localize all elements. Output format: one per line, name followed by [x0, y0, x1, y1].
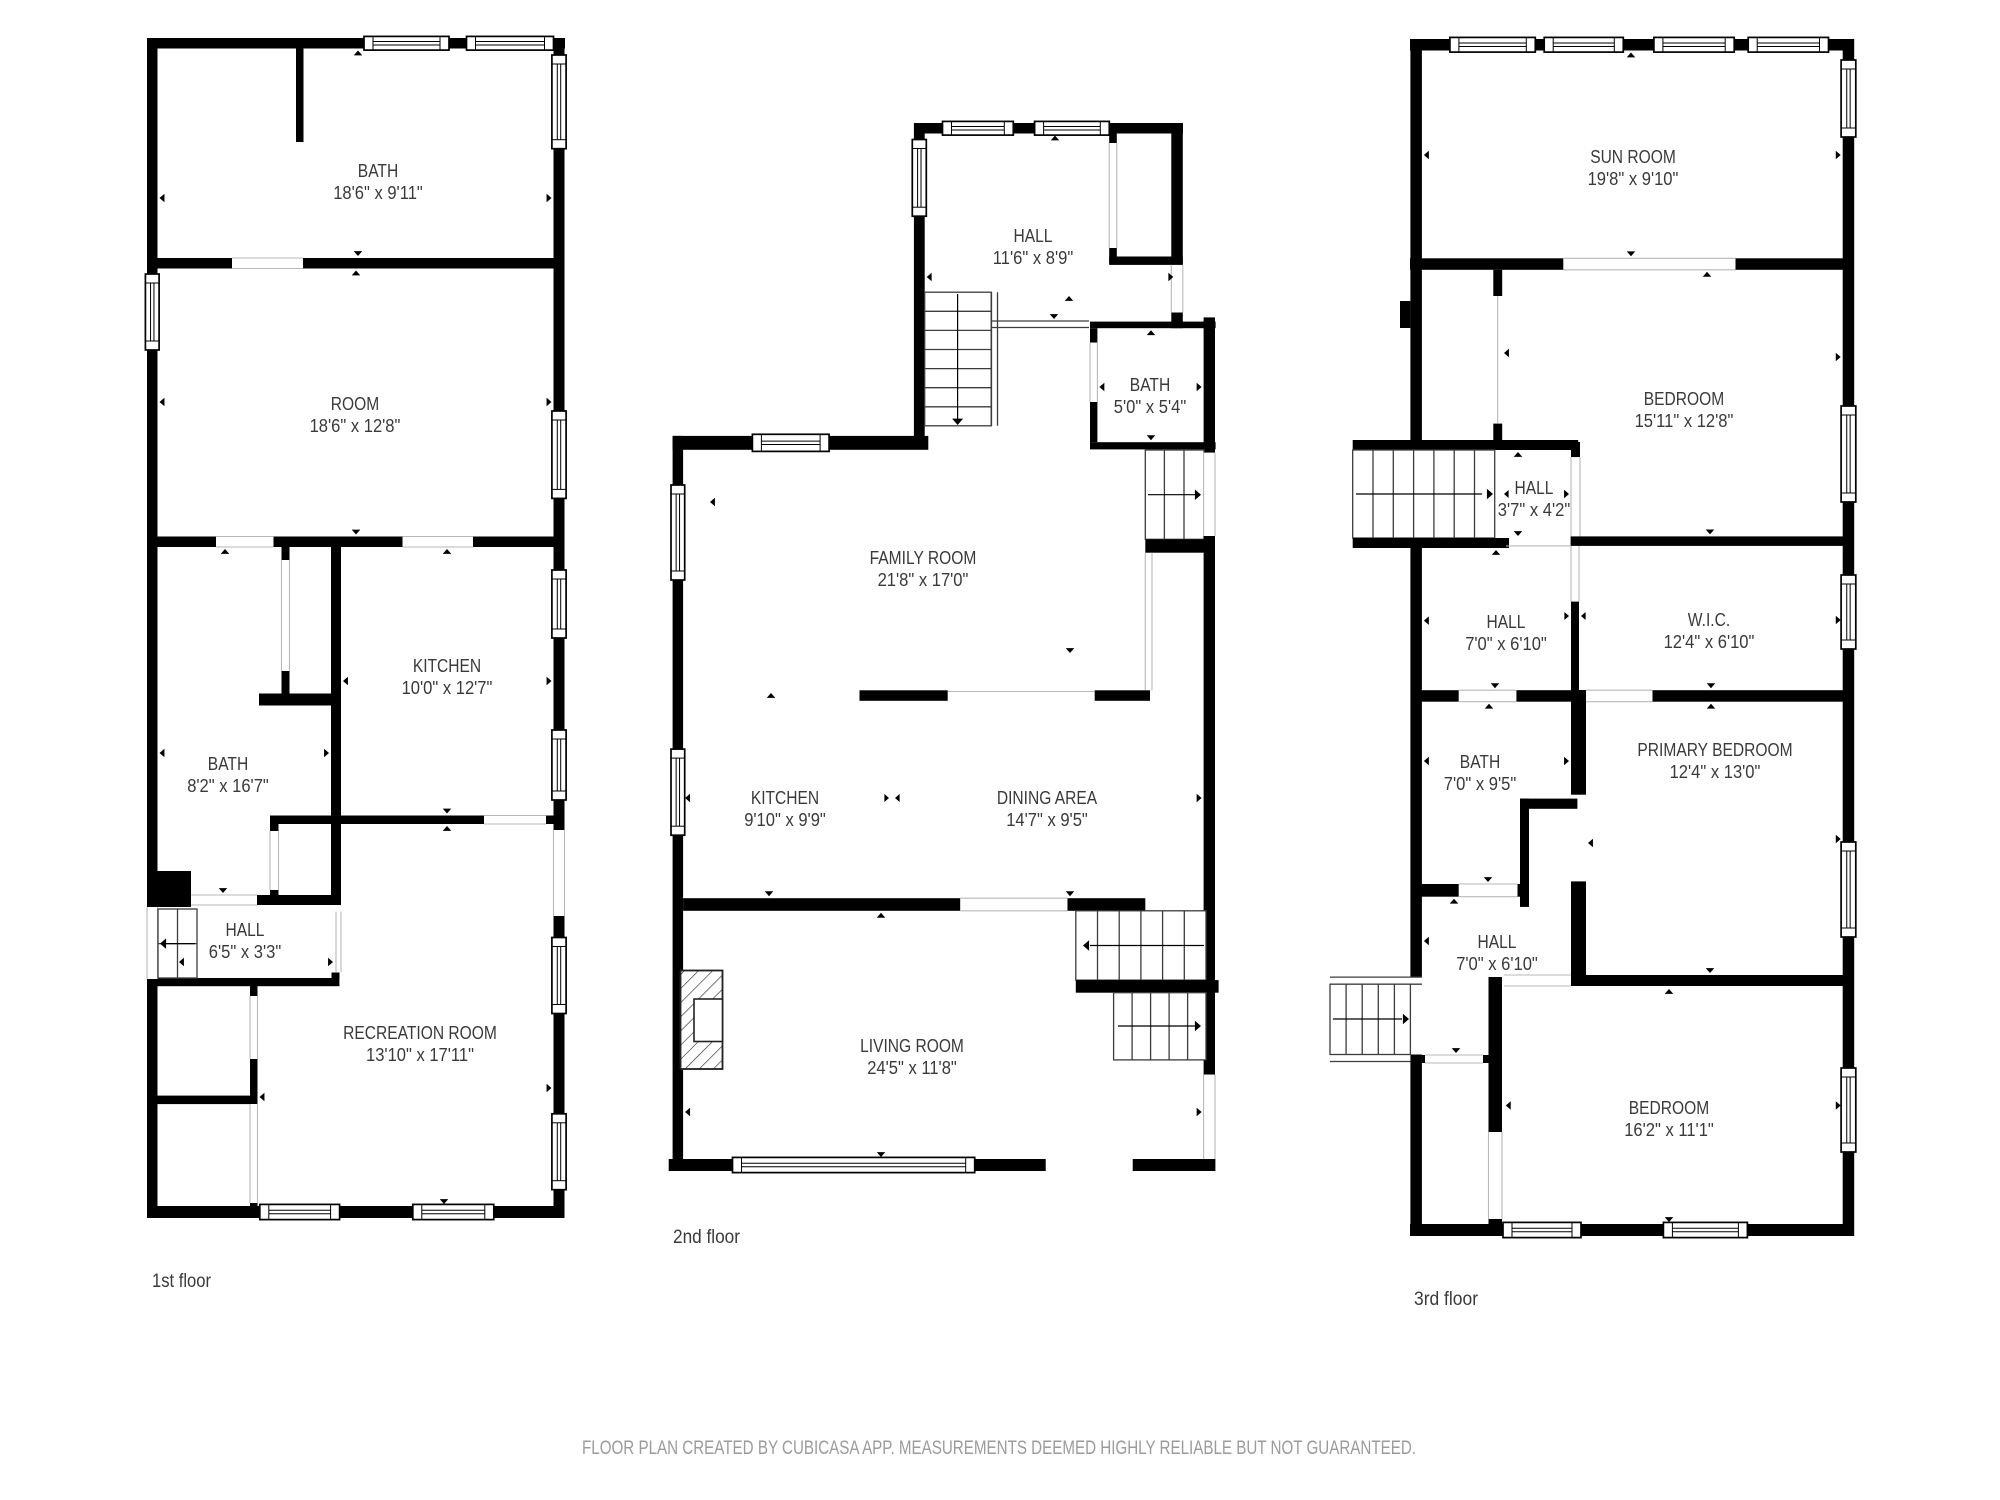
svg-text:8'2" x 16'7": 8'2" x 16'7": [187, 776, 269, 796]
svg-text:9'10" x 9'9": 9'10" x 9'9": [744, 810, 826, 830]
svg-text:13'10" x 17'11": 13'10" x 17'11": [366, 1045, 474, 1065]
svg-text:11'6" x 8'9": 11'6" x 8'9": [993, 248, 1073, 268]
svg-text:HALL: HALL: [1478, 932, 1517, 952]
svg-text:LIVING ROOM: LIVING ROOM: [860, 1036, 964, 1056]
svg-text:3'7" x 4'2": 3'7" x 4'2": [1498, 500, 1570, 520]
svg-text:SUN ROOM: SUN ROOM: [1590, 147, 1676, 167]
svg-text:12'4" x 6'10": 12'4" x 6'10": [1664, 632, 1755, 652]
svg-text:19'8" x 9'10": 19'8" x 9'10": [1588, 169, 1679, 189]
svg-text:W.I.C.: W.I.C.: [1688, 610, 1730, 630]
svg-text:HALL: HALL: [1014, 226, 1053, 246]
svg-text:BEDROOM: BEDROOM: [1644, 389, 1724, 409]
svg-text:21'8" x 17'0": 21'8" x 17'0": [878, 570, 969, 590]
svg-text:2nd floor: 2nd floor: [673, 1227, 741, 1248]
svg-text:10'0" x 12'7": 10'0" x 12'7": [402, 678, 493, 698]
svg-text:6'5" x 3'3": 6'5" x 3'3": [209, 942, 281, 962]
svg-text:3rd floor: 3rd floor: [1414, 1289, 1479, 1310]
svg-text:18'6" x 9'11": 18'6" x 9'11": [333, 183, 423, 203]
svg-text:FLOOR PLAN CREATED BY CUBICASA: FLOOR PLAN CREATED BY CUBICASA APP. MEAS…: [582, 1438, 1416, 1459]
svg-text:KITCHEN: KITCHEN: [751, 788, 819, 808]
svg-text:BATH: BATH: [358, 161, 398, 181]
svg-text:BATH: BATH: [208, 754, 248, 774]
svg-text:FAMILY ROOM: FAMILY ROOM: [870, 548, 977, 568]
svg-text:7'0" x 6'10": 7'0" x 6'10": [1465, 634, 1547, 654]
svg-text:7'0" x 9'5": 7'0" x 9'5": [1444, 774, 1516, 794]
svg-text:5'0" x 5'4": 5'0" x 5'4": [1114, 397, 1186, 417]
svg-text:HALL: HALL: [1487, 612, 1526, 632]
svg-text:7'0" x 6'10": 7'0" x 6'10": [1456, 954, 1538, 974]
svg-text:15'11" x 12'8": 15'11" x 12'8": [1635, 411, 1734, 431]
svg-text:16'2" x 11'1": 16'2" x 11'1": [1624, 1120, 1714, 1140]
svg-text:BATH: BATH: [1130, 375, 1170, 395]
svg-text:12'4" x 13'0": 12'4" x 13'0": [1670, 762, 1761, 782]
svg-text:ROOM: ROOM: [331, 394, 379, 414]
svg-text:PRIMARY BEDROOM: PRIMARY BEDROOM: [1637, 740, 1792, 760]
svg-text:1st floor: 1st floor: [152, 1271, 212, 1292]
svg-text:BATH: BATH: [1460, 752, 1500, 772]
svg-text:24'5" x 11'8": 24'5" x 11'8": [867, 1058, 957, 1078]
svg-text:DINING AREA: DINING AREA: [997, 788, 1097, 808]
svg-text:HALL: HALL: [1515, 478, 1554, 498]
svg-text:KITCHEN: KITCHEN: [413, 656, 481, 676]
svg-text:HALL: HALL: [226, 920, 265, 940]
svg-text:BEDROOM: BEDROOM: [1629, 1098, 1709, 1118]
svg-text:18'6" x 12'8": 18'6" x 12'8": [310, 416, 401, 436]
svg-text:RECREATION ROOM: RECREATION ROOM: [343, 1023, 497, 1043]
svg-text:14'7" x 9'5": 14'7" x 9'5": [1006, 810, 1088, 830]
